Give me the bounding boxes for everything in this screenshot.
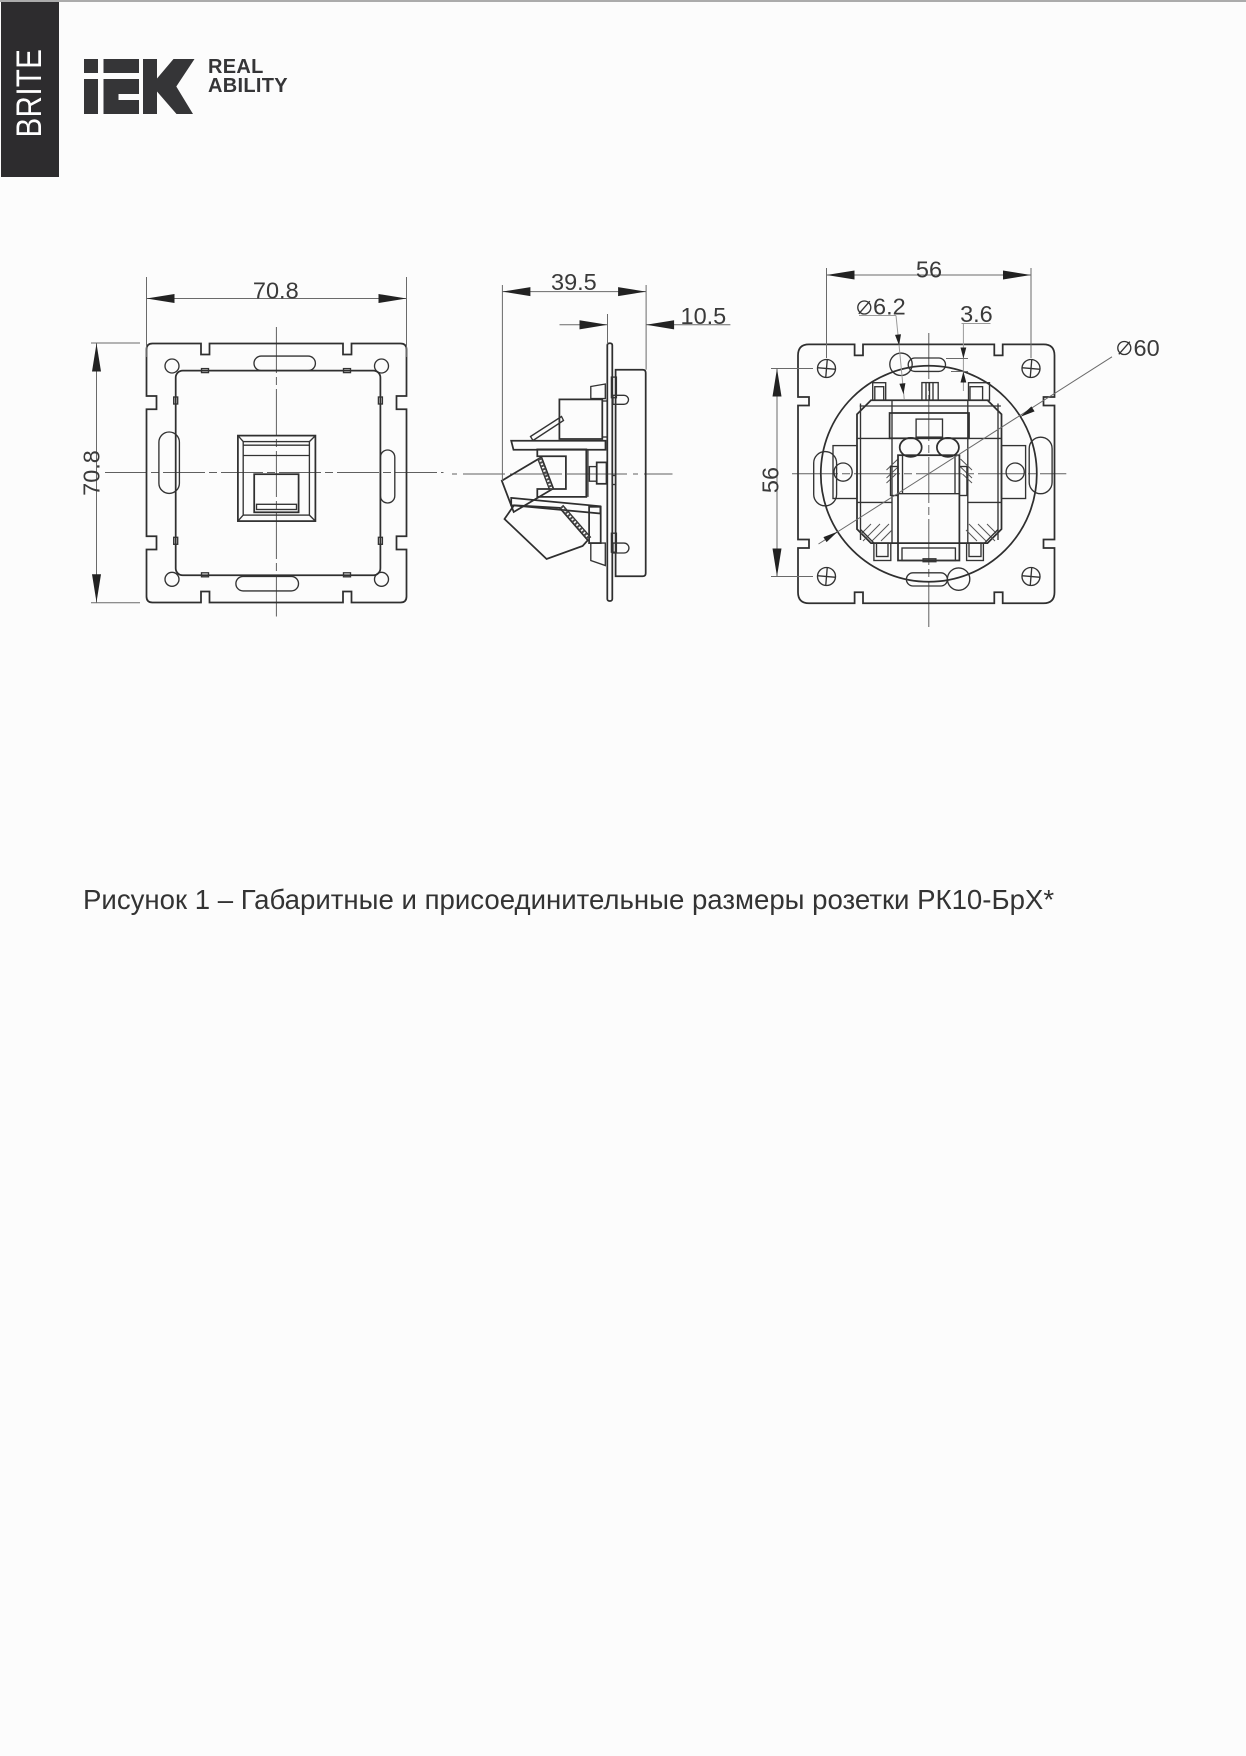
svg-text:56: 56: [916, 257, 942, 283]
svg-text:10.5: 10.5: [681, 303, 727, 329]
svg-text:60: 60: [1134, 335, 1160, 361]
svg-text:70.8: 70.8: [79, 450, 105, 496]
svg-text:39.5: 39.5: [551, 269, 597, 295]
svg-text:70.8: 70.8: [253, 277, 299, 303]
svg-text:56: 56: [758, 467, 784, 493]
